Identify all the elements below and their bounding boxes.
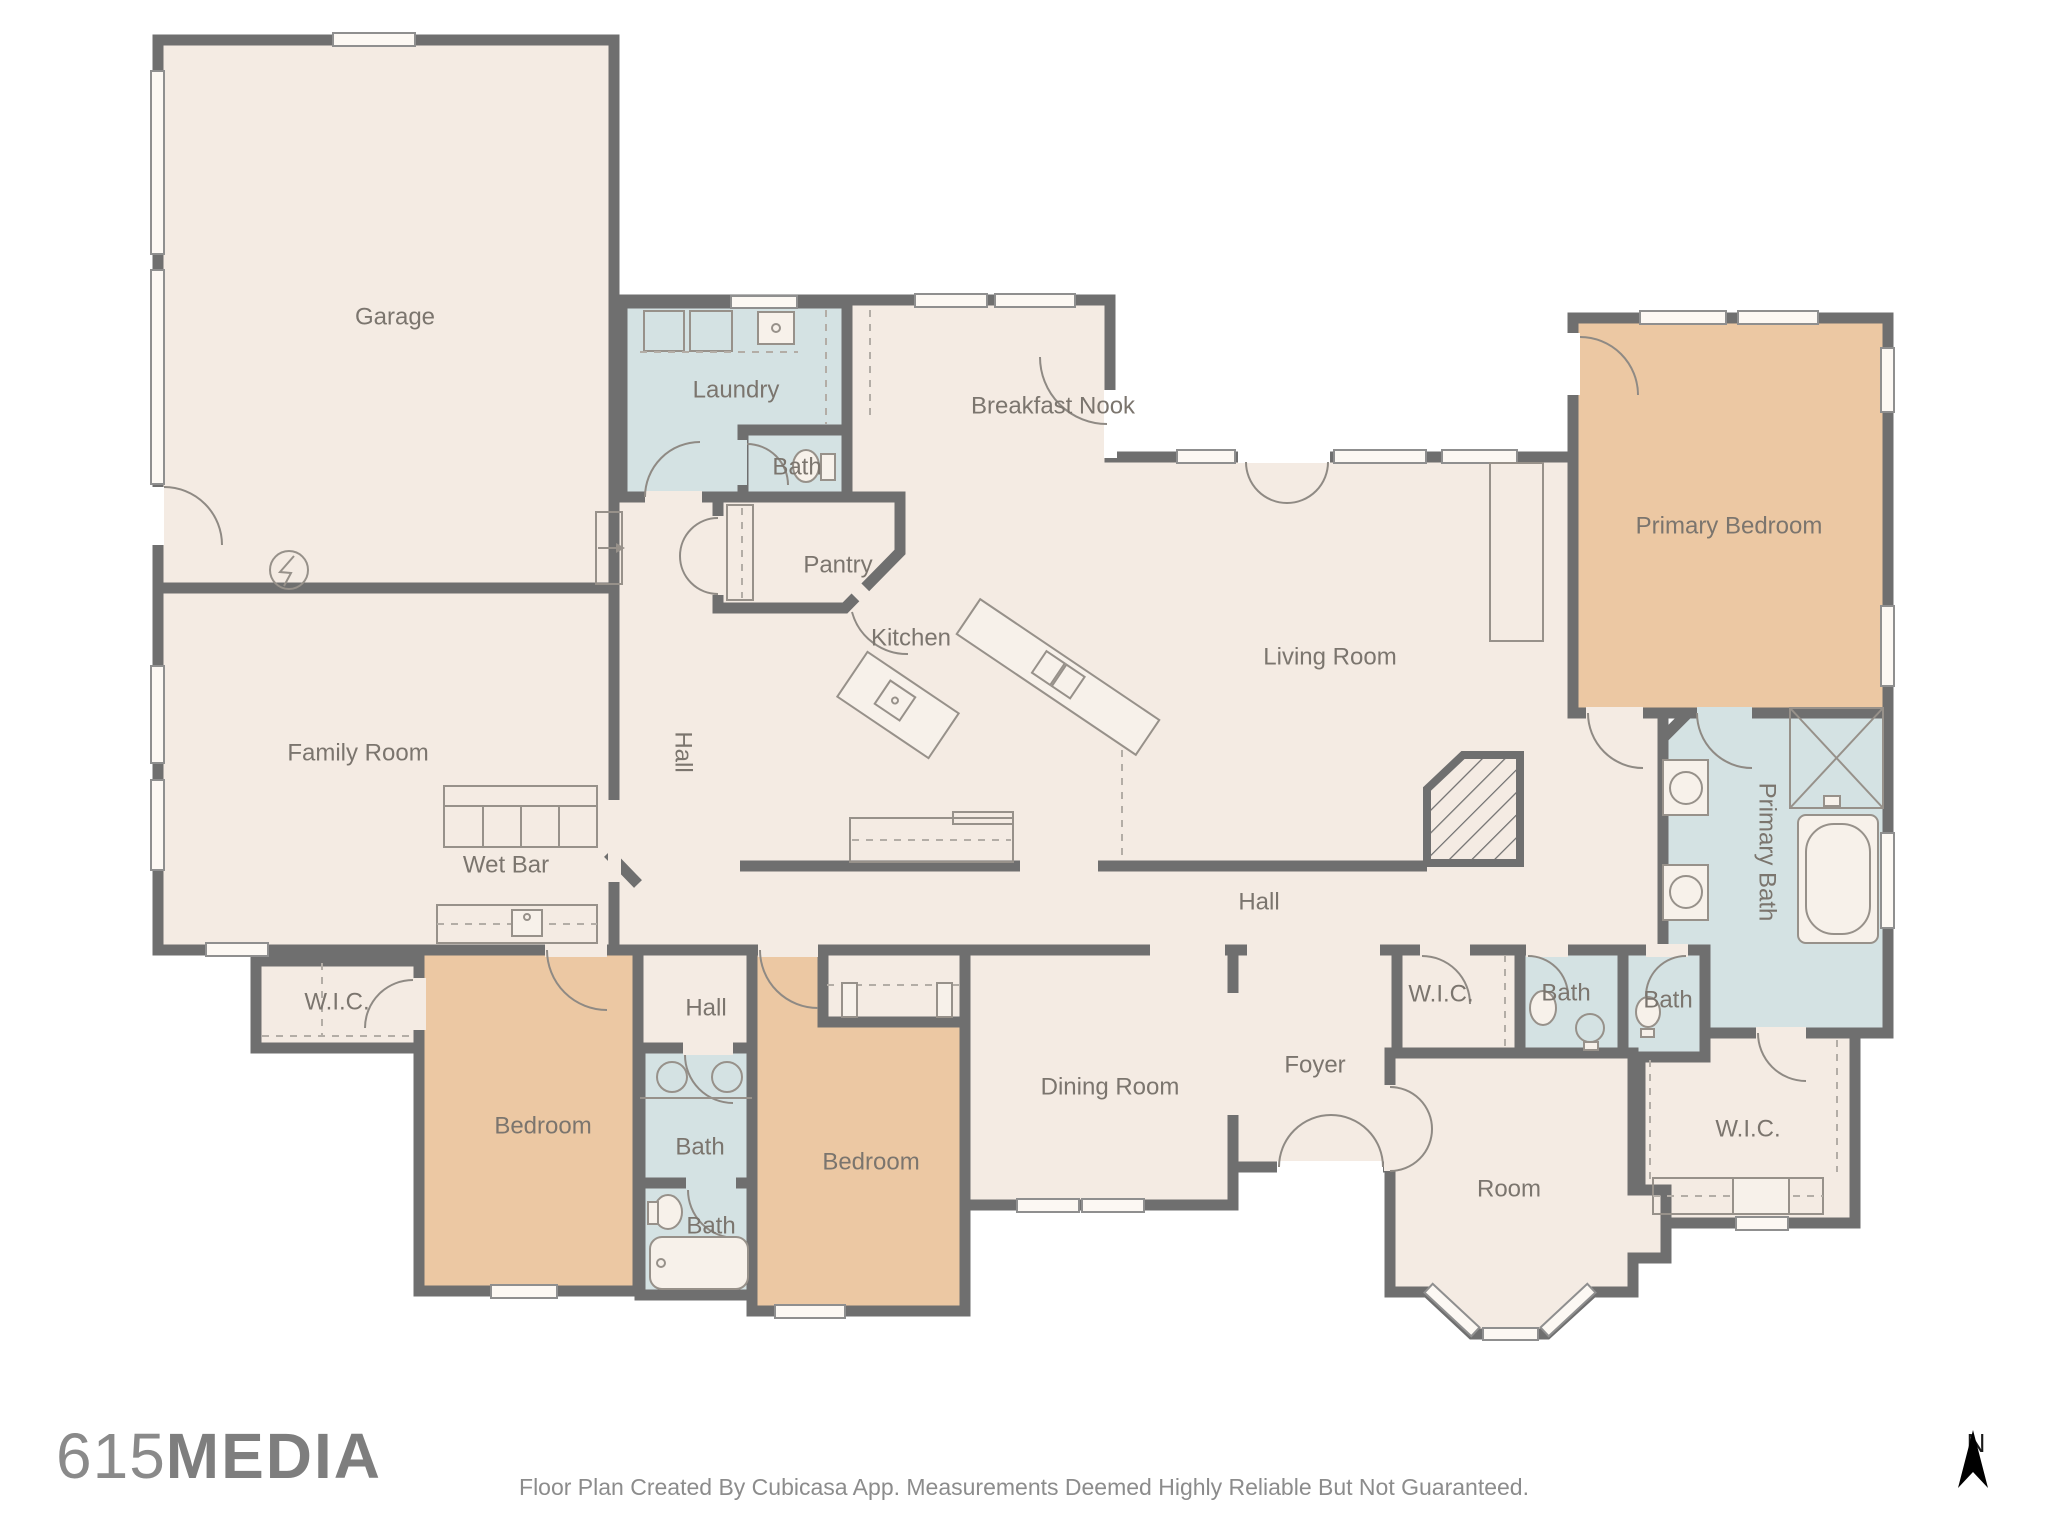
room-bath-left — [640, 1048, 752, 1183]
fireplace-icon — [1427, 755, 1520, 863]
room-label-bath-left-lower: Bath — [686, 1212, 735, 1239]
room-label-bath-laundry: Bath — [772, 453, 821, 480]
room-label-bath-center: Bath — [1541, 979, 1590, 1006]
room-label-wic-center: W.I.C. — [1408, 980, 1473, 1007]
room-label-dining-room: Dining Room — [1041, 1073, 1180, 1100]
room-label-hall-main: Hall — [1238, 888, 1279, 915]
compass: N — [1946, 1428, 2006, 1459]
room-label-room: Room — [1477, 1175, 1541, 1202]
room-label-bedroom-left: Bedroom — [494, 1112, 591, 1139]
room-label-wet-bar: Wet Bar — [463, 851, 549, 878]
room-label-wic-left: W.I.C. — [304, 988, 369, 1015]
floorplan-page: GarageLaundryBathPantryBreakfast NookKit… — [0, 0, 2048, 1536]
room-label-bath-right: Bath — [1643, 986, 1692, 1013]
room-label-breakfast-nook: Breakfast Nook — [971, 392, 1136, 419]
room-label-bath-left: Bath — [675, 1133, 724, 1160]
room-label-bedroom-center: Bedroom — [822, 1148, 919, 1175]
room-floors — [158, 40, 1888, 1334]
room-label-pantry: Pantry — [803, 551, 872, 578]
room-label-primary-bedroom: Primary Bedroom — [1636, 512, 1823, 539]
room-label-kitchen: Kitchen — [871, 624, 951, 651]
room-label-family-room: Family Room — [287, 739, 428, 766]
room-label-foyer: Foyer — [1284, 1051, 1345, 1078]
disclaimer-text: Floor Plan Created By Cubicasa App. Meas… — [0, 1474, 2048, 1501]
room-label-laundry: Laundry — [693, 376, 780, 403]
north-arrow-icon — [1946, 1428, 2000, 1492]
floorplan-drawing: GarageLaundryBathPantryBreakfast NookKit… — [0, 0, 2048, 1536]
room-label-living-room: Living Room — [1263, 643, 1396, 670]
room-label-garage: Garage — [355, 303, 435, 330]
room-label-wic-bottom-right: W.I.C. — [1715, 1115, 1780, 1142]
room-label-primary-bath: Primary Bath — [1754, 783, 1781, 922]
room-family — [158, 588, 614, 950]
room-label-hall-vertical: Hall — [670, 731, 697, 772]
room-label-hall-small: Hall — [685, 994, 726, 1021]
